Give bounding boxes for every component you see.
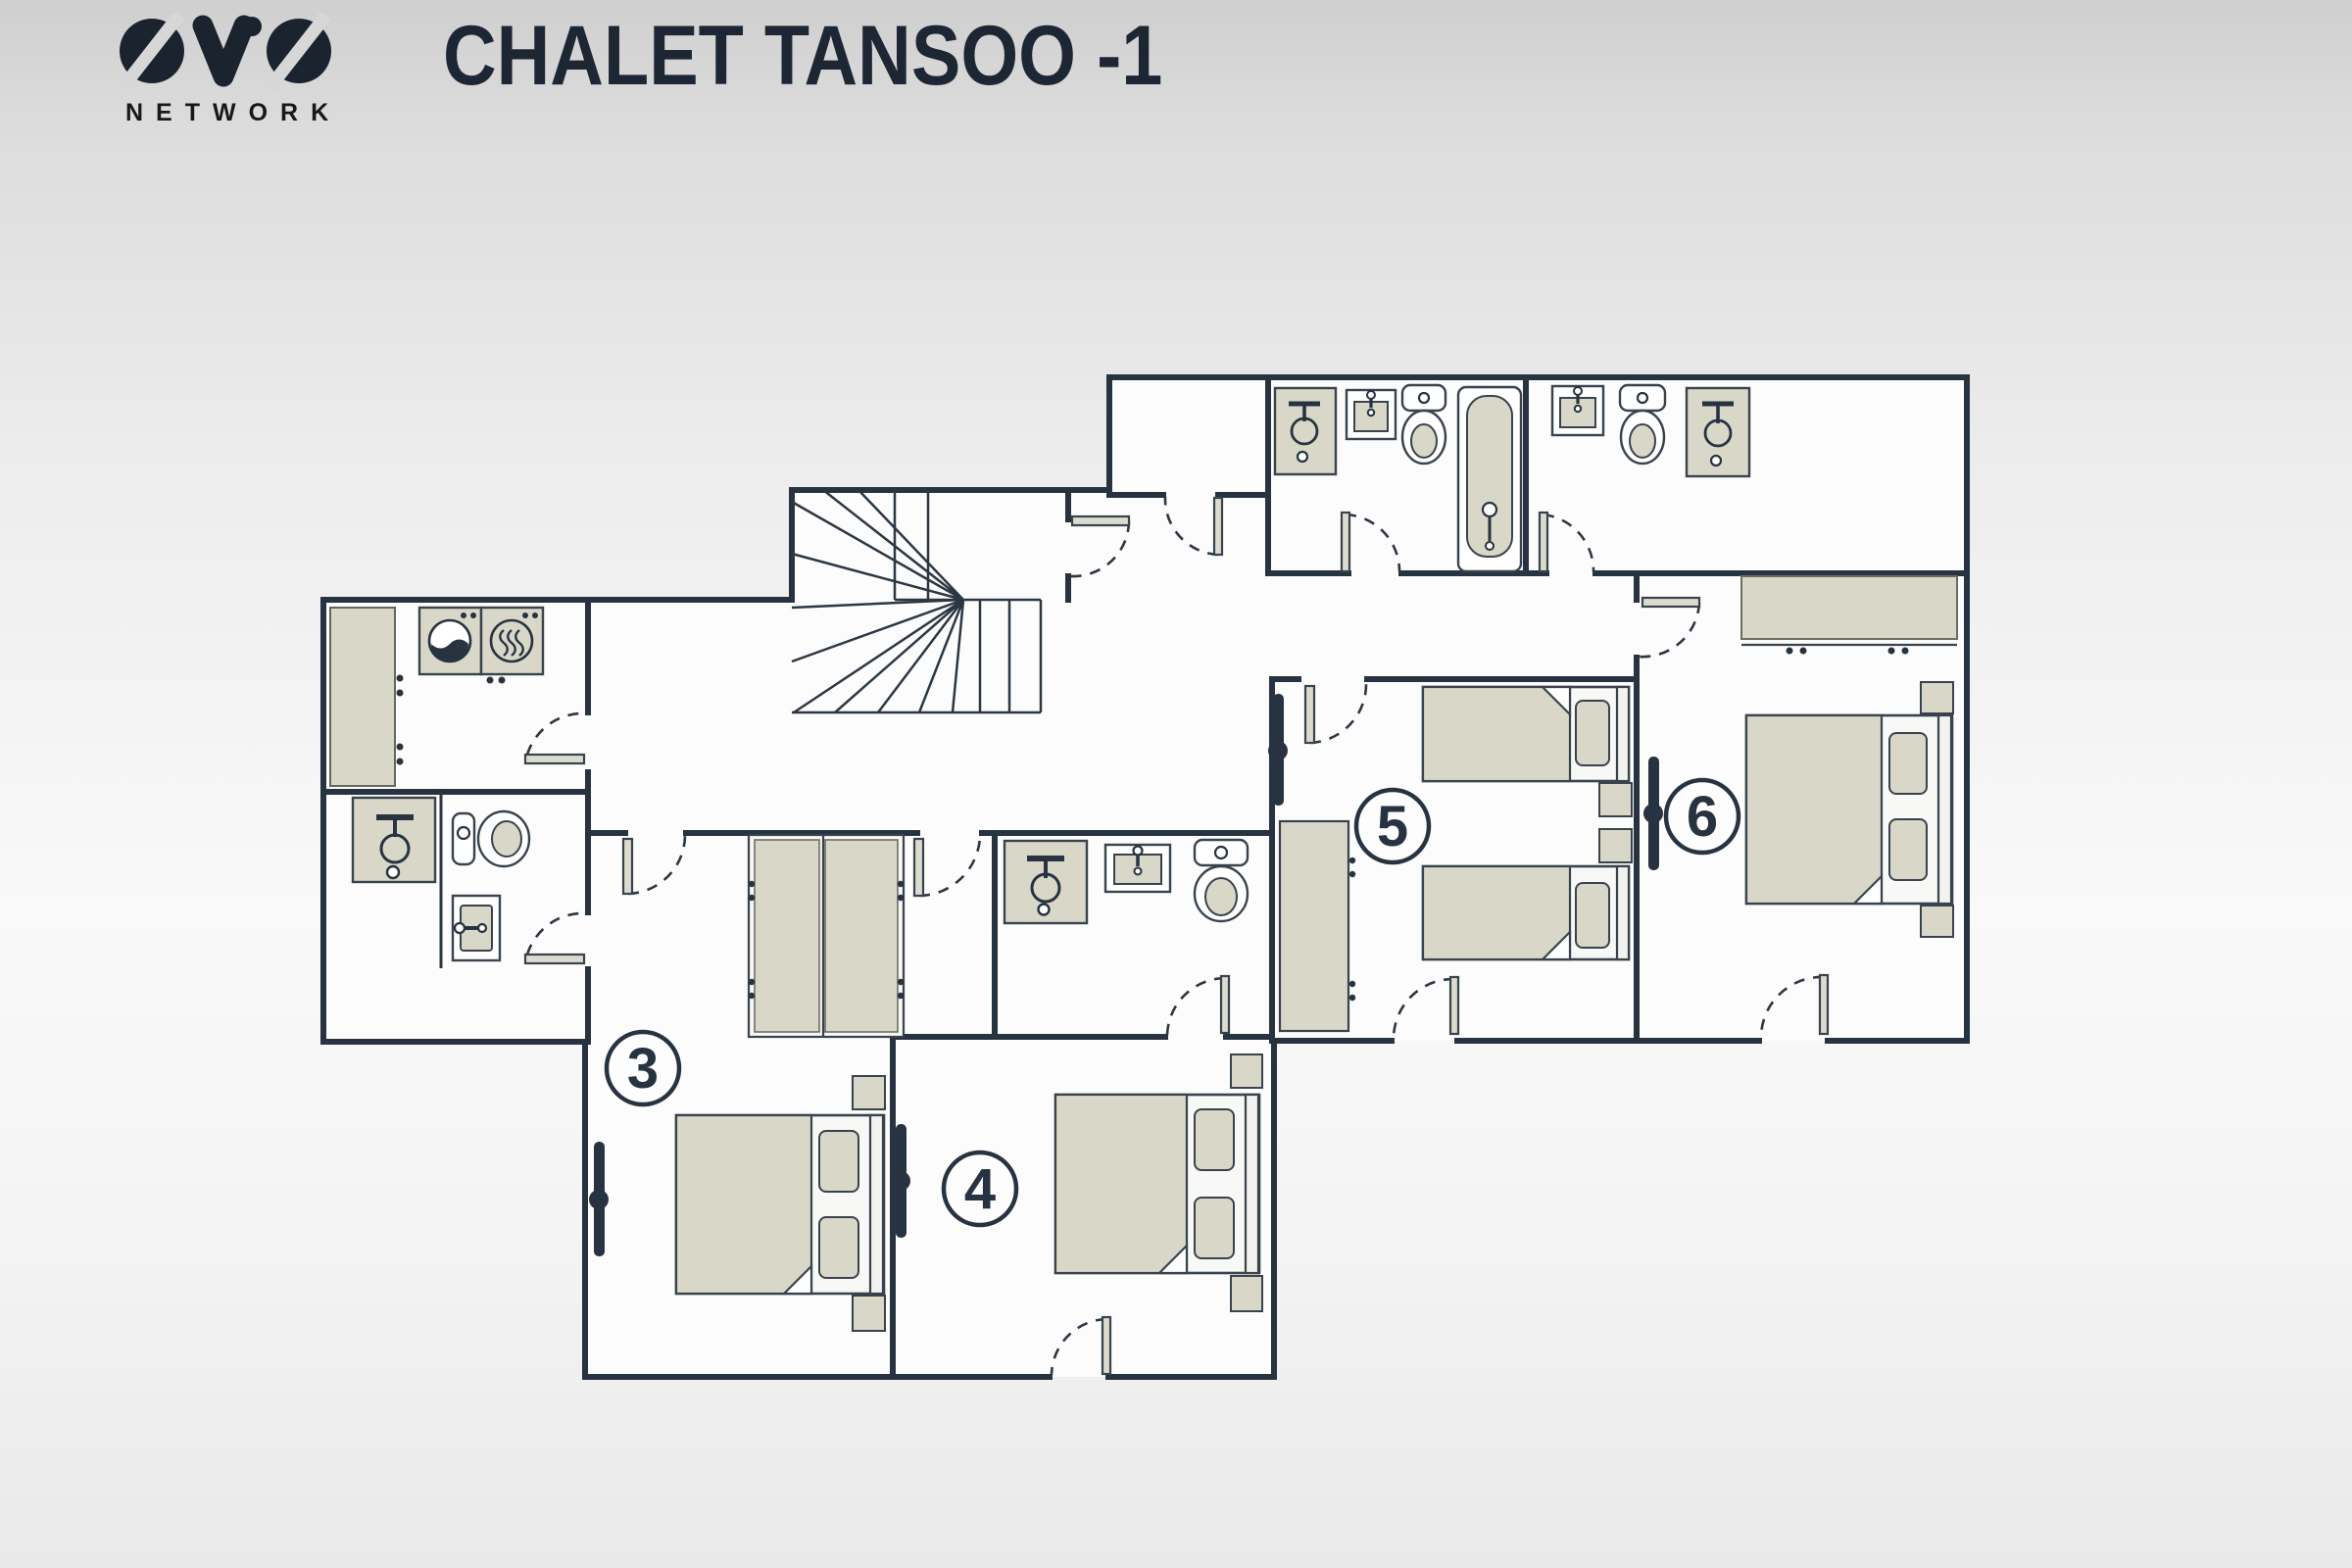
washbasin-icon [1105, 845, 1170, 892]
svg-text:3: 3 [627, 1037, 659, 1101]
room-5-badge: 5 [1356, 790, 1429, 862]
nightstand [1921, 682, 1953, 713]
door-leaf [1450, 977, 1458, 1034]
tumble-dryer-icon [481, 608, 543, 674]
shower-icon [353, 798, 435, 882]
door-leaf [1102, 1317, 1110, 1374]
nightstand [1599, 783, 1632, 816]
door-leaf [1221, 976, 1229, 1033]
double-bed [1746, 682, 1953, 937]
toilet-icon [1195, 840, 1248, 921]
toilet-icon [1620, 385, 1665, 464]
laundry-counter [330, 608, 395, 786]
room-3-badge: 3 [607, 1032, 679, 1104]
nightstand [1231, 1276, 1262, 1311]
single-bed [1423, 687, 1629, 781]
nightstand [853, 1076, 885, 1109]
double-bed [676, 1076, 885, 1331]
door-leaf [1540, 513, 1547, 571]
door-leaf [1072, 516, 1129, 525]
shower-icon [1275, 388, 1336, 474]
wardrobe [1280, 821, 1348, 1031]
door-leaf [1642, 598, 1699, 607]
svg-text:5: 5 [1377, 795, 1408, 858]
floor-plan: 3 4 [0, 0, 2352, 1568]
svg-text:4: 4 [964, 1157, 996, 1221]
shower-icon [1004, 841, 1087, 923]
svg-text:6: 6 [1687, 785, 1718, 849]
nightstand [1599, 829, 1632, 862]
nightstand [1231, 1054, 1262, 1088]
room-4-badge: 4 [944, 1152, 1016, 1225]
bathtub-icon [1458, 387, 1521, 571]
wardrobe [749, 835, 904, 1037]
door-leaf [1342, 513, 1349, 571]
door-leaf [1305, 686, 1314, 743]
door-leaf [1820, 975, 1828, 1034]
washbasin-icon [453, 896, 500, 960]
door-leaf [525, 755, 584, 763]
nightstand [1921, 906, 1953, 937]
door-leaf [1214, 498, 1222, 555]
single-bed [1423, 866, 1629, 959]
door-leaf [914, 839, 923, 896]
shower-icon [1687, 388, 1749, 476]
washing-machine-icon [419, 608, 481, 674]
toilet-icon [453, 811, 529, 866]
washbasin-icon [1347, 390, 1396, 439]
door-leaf [623, 839, 632, 894]
toilet-icon [1402, 385, 1445, 464]
nightstand [853, 1296, 885, 1331]
washbasin-icon [1552, 386, 1603, 435]
door-leaf [525, 955, 584, 963]
room-6-badge: 6 [1666, 780, 1739, 853]
